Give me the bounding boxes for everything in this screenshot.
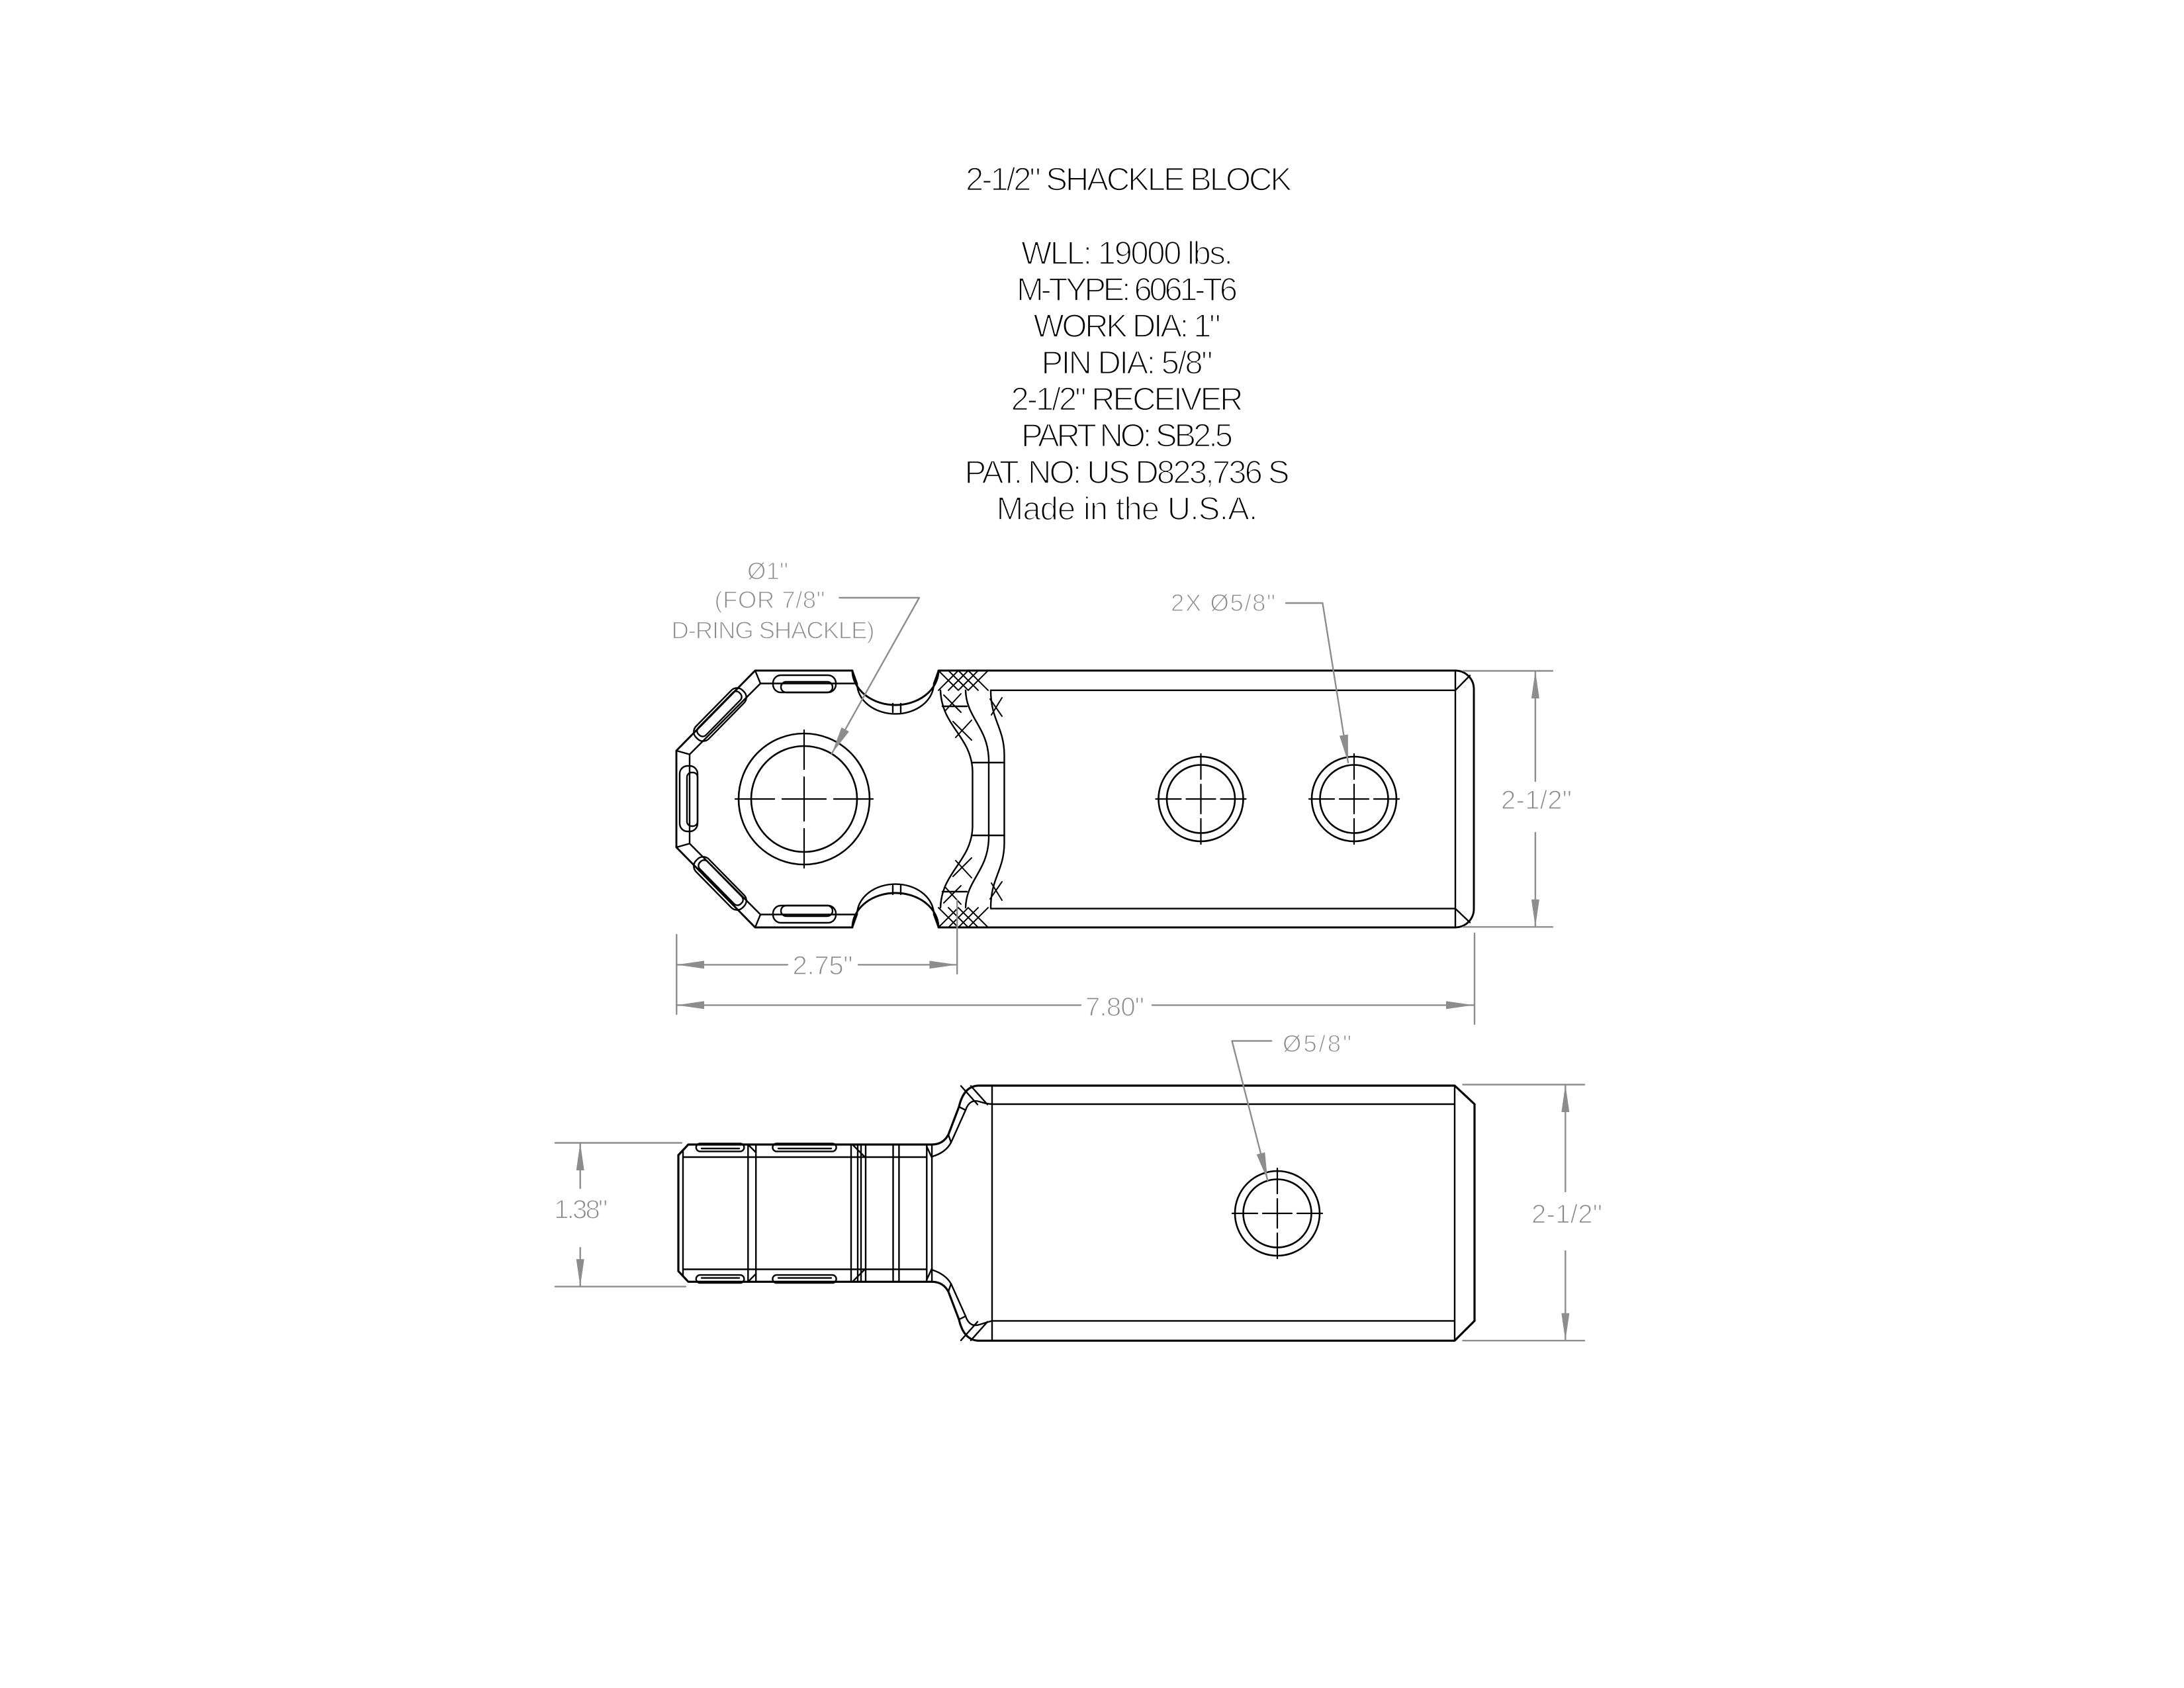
svg-text:2-1/2": 2-1/2" [1501,786,1572,815]
svg-text:Made in the U.S.A.: Made in the U.S.A. [997,491,1258,527]
svg-text:PART NO: SB2.5: PART NO: SB2.5 [1021,418,1233,454]
svg-text:Ø1": Ø1" [747,557,788,585]
svg-text:PIN DIA: 5/8": PIN DIA: 5/8" [1042,346,1213,381]
svg-text:2-1/2" RECEIVER: 2-1/2" RECEIVER [1011,382,1244,418]
svg-text:2-1/2" SHACKLE BLOCK: 2-1/2" SHACKLE BLOCK [966,162,1292,198]
svg-text:(FOR 7/8": (FOR 7/8" [715,586,825,614]
svg-text:PAT. NO: US D823,736 S: PAT. NO: US D823,736 S [965,455,1290,491]
svg-text:WORK DIA: 1": WORK DIA: 1" [1034,308,1221,344]
svg-text:WLL: 19000 lbs.: WLL: 19000 lbs. [1021,236,1233,271]
svg-text:2.75": 2.75" [793,951,853,980]
svg-text:M-TYPE: 6061-T6: M-TYPE: 6061-T6 [1017,272,1238,308]
svg-text:1.38": 1.38" [554,1196,608,1225]
svg-text:7.80": 7.80" [1085,993,1144,1022]
svg-text:2X Ø5/8": 2X Ø5/8" [1171,589,1275,616]
svg-text:2-1/2": 2-1/2" [1531,1199,1602,1229]
svg-text:D-RING SHACKLE): D-RING SHACKLE) [672,617,875,644]
